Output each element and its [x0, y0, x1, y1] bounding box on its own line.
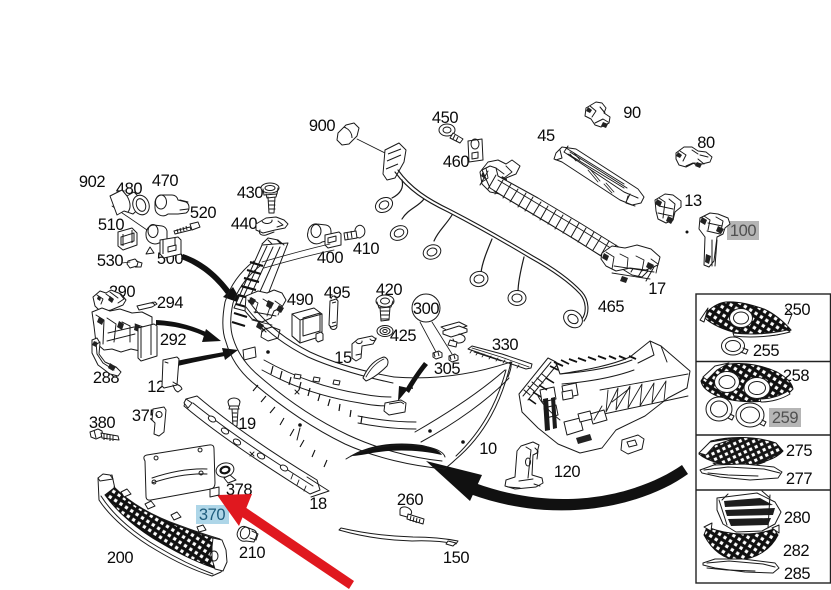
svg-text:430: 430 — [237, 184, 264, 202]
svg-text:18: 18 — [309, 495, 327, 513]
svg-text:470: 470 — [152, 172, 179, 190]
svg-text:120: 120 — [554, 463, 581, 481]
svg-text:260: 260 — [397, 491, 424, 509]
svg-text:200: 200 — [107, 549, 134, 567]
svg-text:255: 255 — [753, 342, 780, 360]
svg-text:100: 100 — [730, 222, 757, 240]
svg-text:259: 259 — [772, 409, 799, 427]
svg-text:285: 285 — [784, 565, 811, 583]
svg-text:520: 520 — [190, 204, 217, 222]
svg-text:294: 294 — [157, 294, 184, 312]
svg-text:400: 400 — [317, 249, 344, 267]
svg-text:150: 150 — [443, 549, 470, 567]
svg-text:902: 902 — [79, 173, 106, 191]
svg-text:425: 425 — [390, 327, 417, 345]
svg-text:90: 90 — [623, 104, 641, 122]
svg-text:460: 460 — [443, 153, 470, 171]
svg-text:80: 80 — [697, 134, 715, 152]
svg-text:45: 45 — [537, 127, 555, 145]
svg-text:380: 380 — [89, 414, 116, 432]
svg-text:17: 17 — [648, 280, 666, 298]
svg-text:530: 530 — [97, 252, 124, 270]
svg-text:440: 440 — [231, 215, 258, 233]
svg-text:210: 210 — [239, 544, 266, 562]
svg-text:282: 282 — [783, 542, 810, 560]
svg-text:280: 280 — [784, 509, 811, 527]
svg-text:900: 900 — [309, 117, 336, 135]
svg-text:292: 292 — [160, 331, 187, 349]
svg-text:490: 490 — [287, 291, 314, 309]
svg-text:370: 370 — [199, 506, 226, 524]
svg-text:277: 277 — [786, 470, 813, 488]
svg-text:410: 410 — [353, 240, 380, 258]
svg-text:13: 13 — [684, 192, 702, 210]
svg-text:465: 465 — [598, 298, 625, 316]
svg-text:300: 300 — [413, 300, 440, 318]
svg-text:275: 275 — [786, 442, 813, 460]
svg-text:10: 10 — [479, 440, 497, 458]
svg-text:330: 330 — [492, 336, 519, 354]
